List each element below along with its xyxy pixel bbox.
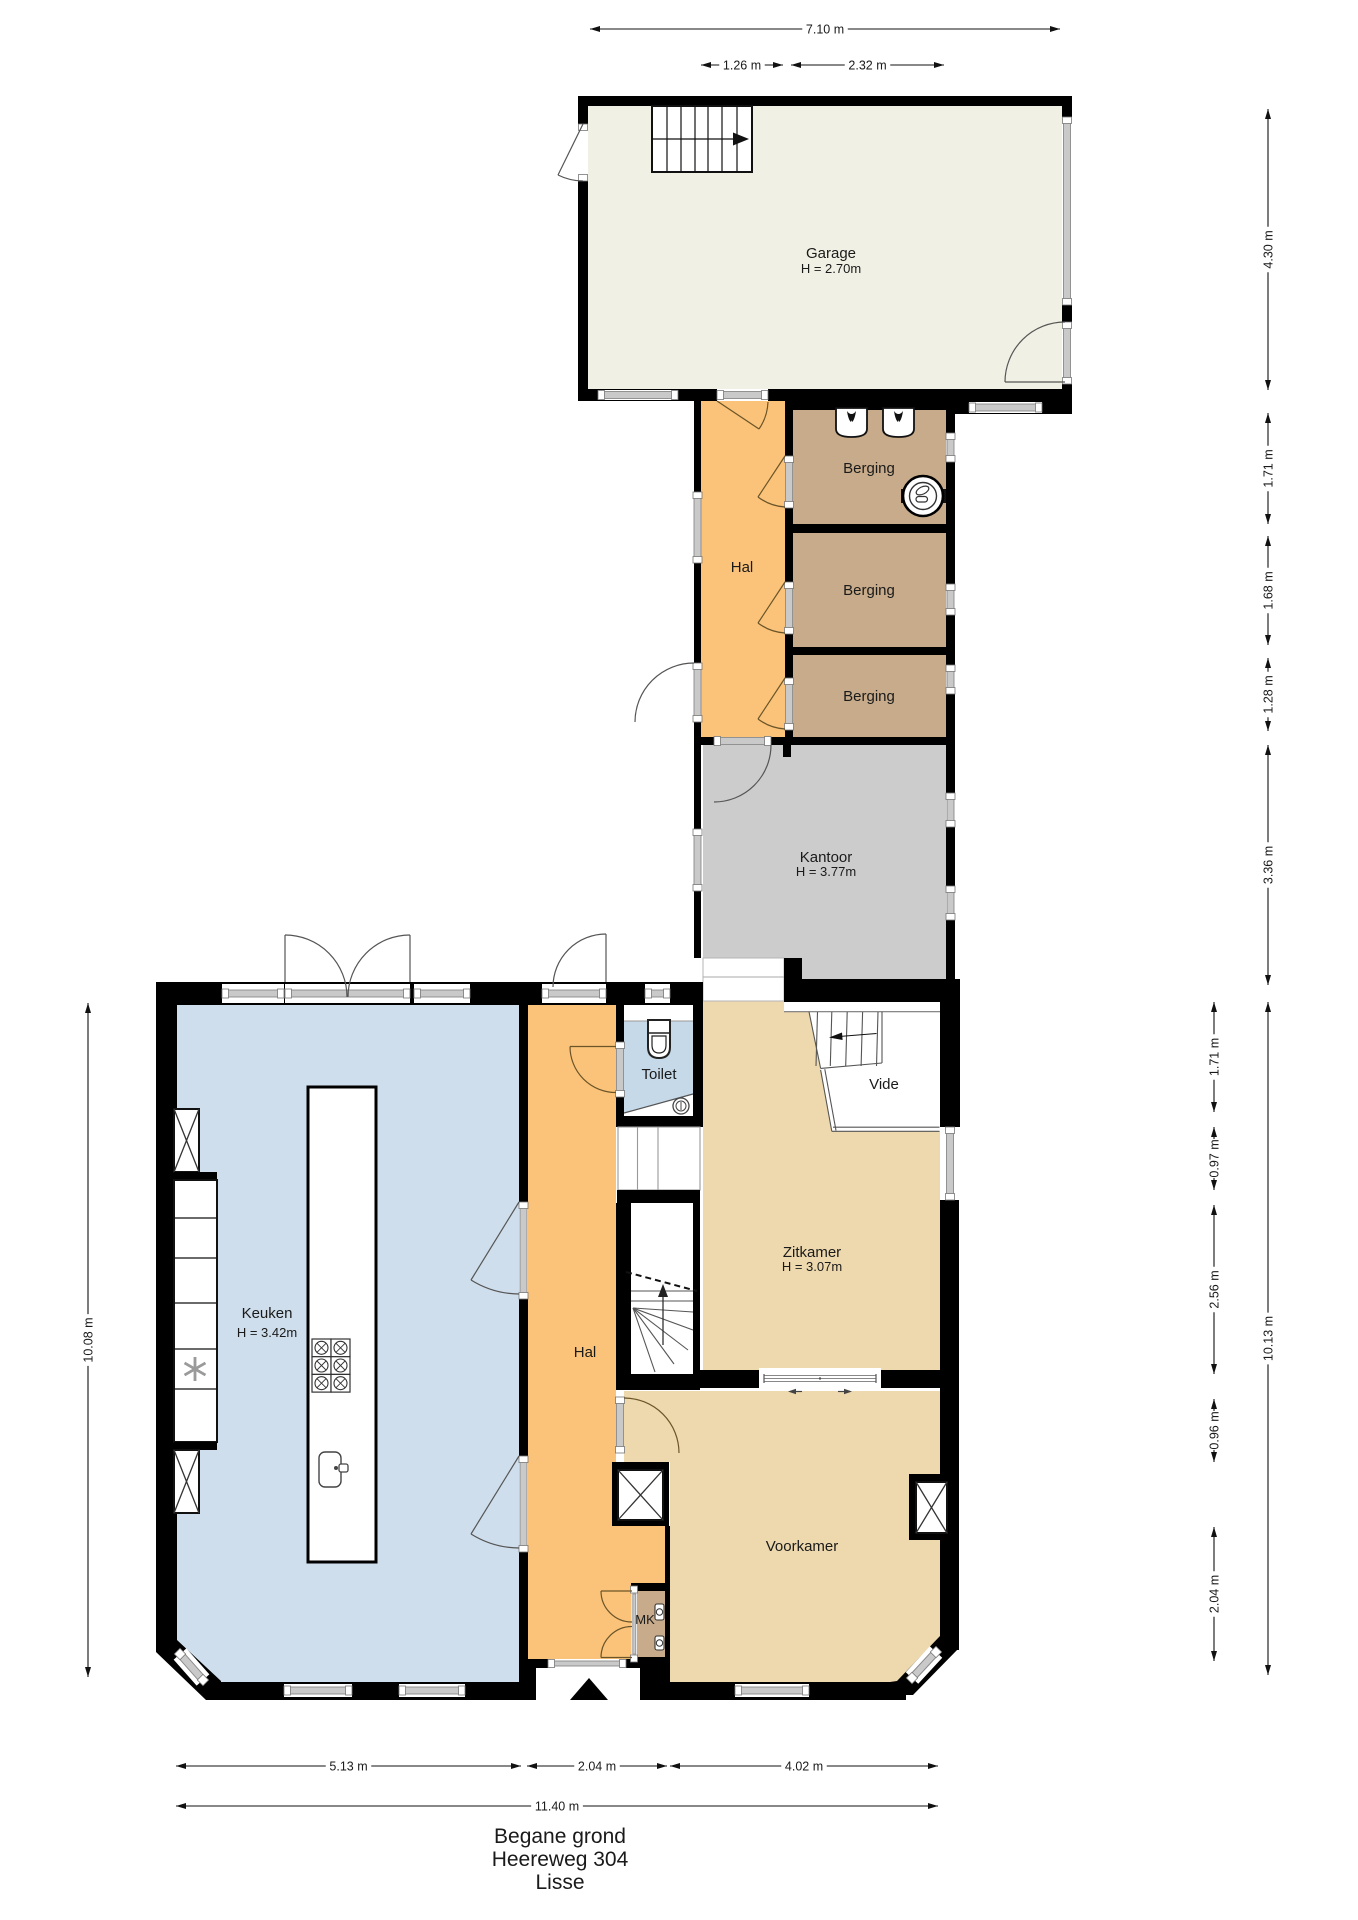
svg-text:2.56 m: 2.56 m (1207, 1270, 1221, 1308)
svg-text:1.71 m: 1.71 m (1261, 449, 1275, 487)
svg-text:Voorkamer: Voorkamer (766, 1538, 839, 1555)
svg-text:Hal: Hal (731, 559, 754, 576)
svg-text:MK: MK (635, 1612, 655, 1627)
svg-text:4.02 m: 4.02 m (785, 1759, 823, 1773)
svg-text:2.04 m: 2.04 m (578, 1759, 616, 1773)
svg-text:H = 2.70m: H = 2.70m (801, 261, 861, 276)
svg-text:3.36 m: 3.36 m (1261, 846, 1275, 884)
svg-text:5.13 m: 5.13 m (329, 1759, 367, 1773)
svg-text:1.28 m: 1.28 m (1261, 675, 1275, 713)
svg-text:Begane grond: Begane grond (494, 1825, 626, 1848)
svg-text:Vide: Vide (869, 1076, 899, 1093)
svg-text:Heereweg 304: Heereweg 304 (492, 1848, 629, 1871)
svg-text:11.40 m: 11.40 m (535, 1799, 579, 1813)
svg-text:Keuken: Keuken (242, 1305, 293, 1322)
svg-text:10.13 m: 10.13 m (1261, 1316, 1275, 1361)
svg-text:Berging: Berging (843, 582, 895, 599)
svg-text:Berging: Berging (843, 688, 895, 705)
svg-text:Toilet: Toilet (641, 1066, 677, 1083)
svg-text:0.96 m: 0.96 m (1207, 1411, 1221, 1449)
svg-text:1.71 m: 1.71 m (1207, 1038, 1221, 1076)
svg-text:Lisse: Lisse (535, 1871, 584, 1894)
svg-text:H = 3.42m: H = 3.42m (237, 1325, 297, 1340)
svg-text:Hal: Hal (574, 1344, 597, 1361)
svg-text:Garage: Garage (806, 245, 856, 262)
svg-text:H = 3.07m: H = 3.07m (782, 1259, 842, 1274)
svg-text:H = 3.77m: H = 3.77m (796, 864, 856, 879)
svg-text:7.10 m: 7.10 m (806, 22, 844, 36)
svg-text:4.30 m: 4.30 m (1261, 230, 1275, 268)
svg-text:2.32 m: 2.32 m (848, 58, 886, 72)
svg-text:10.08 m: 10.08 m (81, 1317, 95, 1362)
svg-text:0.97 m: 0.97 m (1207, 1139, 1221, 1177)
svg-text:1.68 m: 1.68 m (1261, 571, 1275, 609)
svg-text:Berging: Berging (843, 460, 895, 477)
svg-text:2.04 m: 2.04 m (1207, 1575, 1221, 1613)
svg-text:1.26 m: 1.26 m (723, 58, 761, 72)
